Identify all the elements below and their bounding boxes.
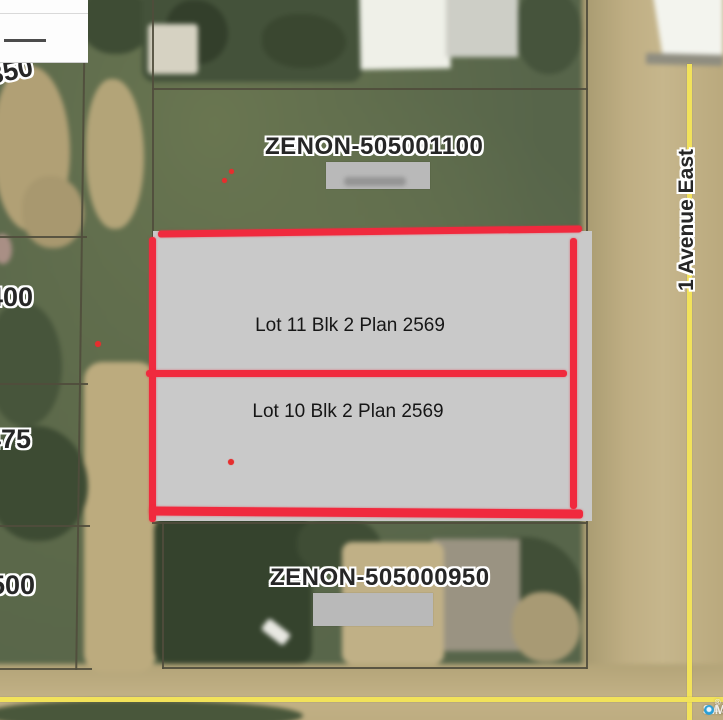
red-marker-dot [222, 178, 227, 183]
lot-10-label: Lot 10 Blk 2 Plan 2569 [252, 401, 443, 423]
lot-11-label: Lot 11 Blk 2 Plan 2569 [255, 315, 445, 337]
redaction-box-top [326, 162, 430, 189]
red-marker-dot [229, 169, 234, 174]
panel-divider [0, 13, 88, 14]
address-label-400: 400 [0, 282, 33, 313]
lot-outline-left [149, 237, 156, 522]
parcel-id-bottom: ZENON-505000950 [270, 564, 490, 592]
clipped-ui-panel [0, 0, 88, 63]
road-centerline-horizontal [0, 697, 723, 702]
parcel-id-top: ZENON-505001100 [265, 133, 483, 161]
red-marker-dot [95, 341, 101, 347]
redaction-box-bottom [313, 593, 433, 626]
panel-dash [4, 39, 46, 42]
red-marker-dot [228, 459, 234, 465]
mls-dot-icon [704, 705, 714, 715]
aerial-map: Lot 11 Blk 2 Plan 2569 Lot 10 Blk 2 Plan… [0, 0, 723, 720]
watermark-registered: ® [715, 698, 721, 707]
address-label-475: 475 [0, 424, 31, 455]
lot-outline-right [570, 238, 577, 509]
street-label: 1 Avenue East [676, 110, 698, 330]
map-annotations: Lot 11 Blk 2 Plan 2569 Lot 10 Blk 2 Plan… [0, 0, 723, 720]
address-label-500: 500 [0, 570, 35, 601]
watermark: SASKMLS® [703, 702, 721, 717]
lot-divider-line [146, 370, 567, 377]
